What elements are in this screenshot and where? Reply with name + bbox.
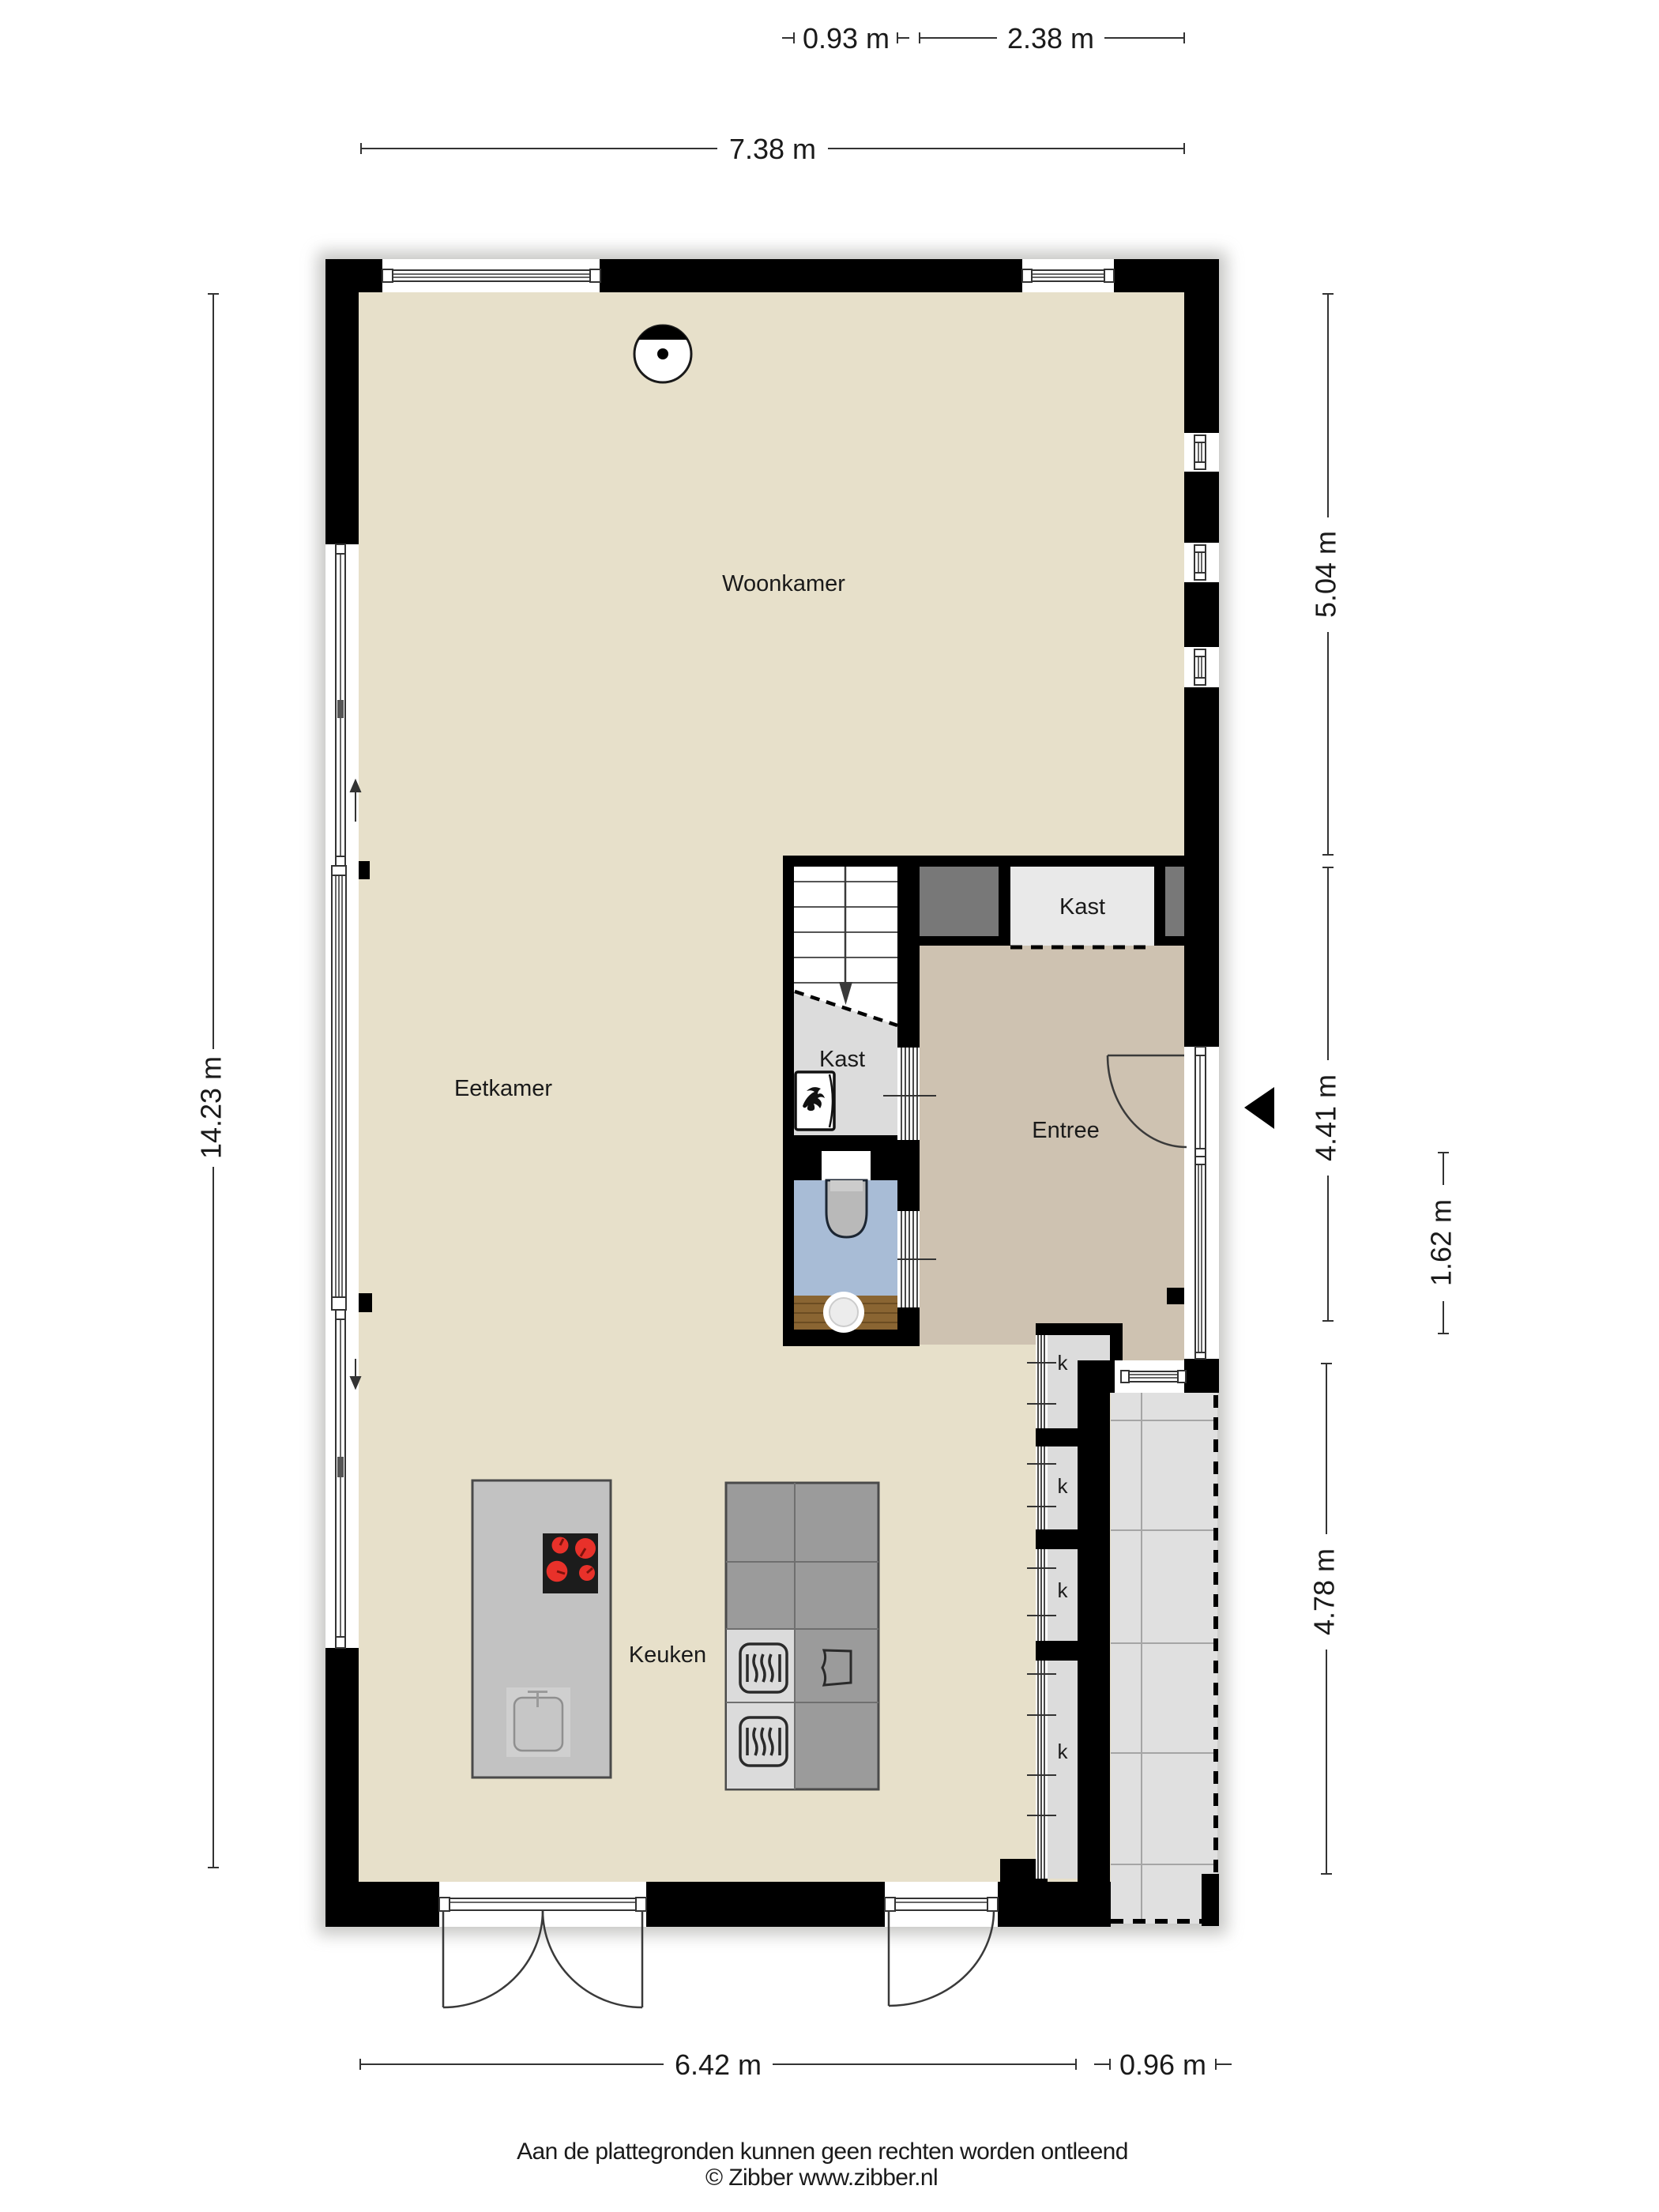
- svg-text:Entree: Entree: [1032, 1118, 1099, 1143]
- svg-text:4.41 m: 4.41 m: [1310, 1074, 1342, 1161]
- svg-text:1.62 m: 1.62 m: [1425, 1199, 1458, 1286]
- svg-text:Kast: Kast: [1059, 894, 1105, 920]
- svg-text:0.93 m: 0.93 m: [803, 22, 890, 55]
- svg-text:0.96 m: 0.96 m: [1119, 2048, 1206, 2081]
- svg-text:4.78 m: 4.78 m: [1308, 1548, 1341, 1635]
- svg-text:k: k: [1058, 1578, 1069, 1602]
- svg-text:Woonkamer: Woonkamer: [722, 571, 845, 596]
- svg-text:Kast: Kast: [819, 1047, 865, 1072]
- svg-text:Aan de plattegronden kunnen ge: Aan de plattegronden kunnen geen rechten…: [517, 2139, 1128, 2165]
- svg-text:Eetkamer: Eetkamer: [454, 1076, 552, 1101]
- svg-text:k: k: [1058, 1351, 1069, 1375]
- svg-text:© Zibber www.zibber.nl: © Zibber www.zibber.nl: [705, 2165, 938, 2191]
- svg-text:k: k: [1058, 1474, 1069, 1498]
- svg-text:Keuken: Keuken: [629, 1642, 706, 1668]
- svg-text:5.04 m: 5.04 m: [1310, 531, 1342, 618]
- svg-text:14.23 m: 14.23 m: [195, 1056, 228, 1159]
- svg-text:2.38 m: 2.38 m: [1007, 22, 1094, 55]
- svg-text:6.42 m: 6.42 m: [675, 2048, 762, 2081]
- svg-text:k: k: [1058, 1740, 1069, 1763]
- svg-text:7.38 m: 7.38 m: [729, 133, 816, 165]
